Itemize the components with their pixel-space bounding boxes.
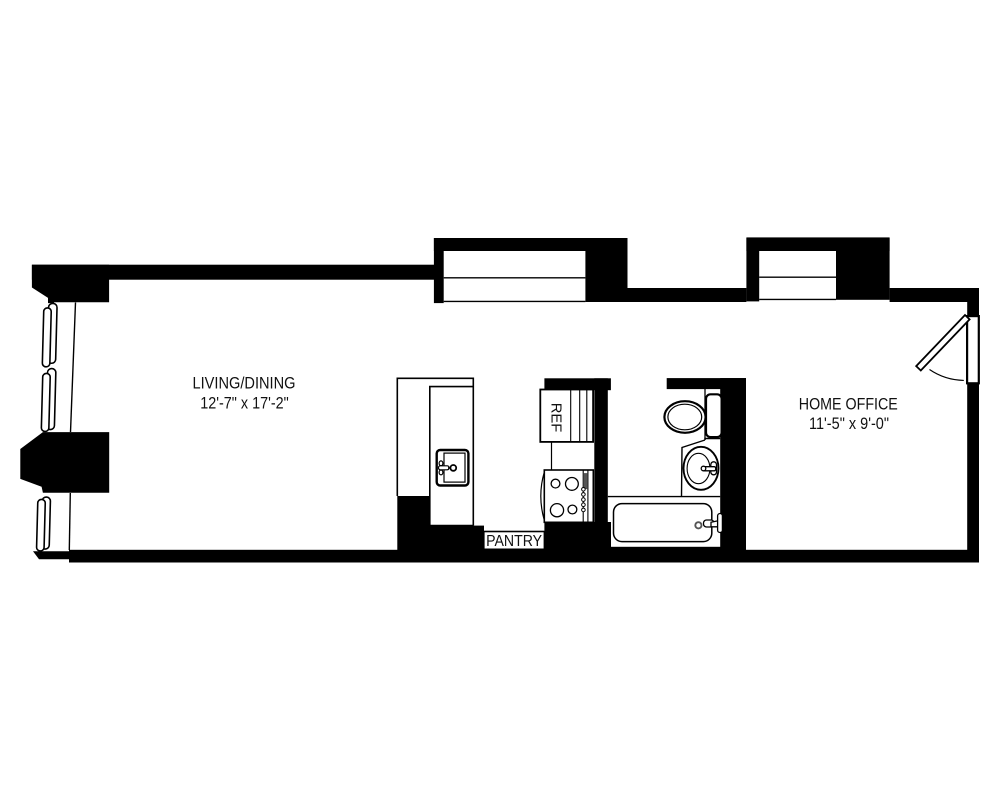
svg-text:HOME OFFICE: HOME OFFICE [799, 395, 898, 414]
svg-text:PANTRY: PANTRY [486, 533, 542, 550]
svg-text:REF: REF [548, 403, 565, 433]
svg-text:LIVING/DINING: LIVING/DINING [193, 374, 296, 393]
svg-text:12'-7" x 17'-2": 12'-7" x 17'-2" [200, 394, 289, 413]
svg-text:11'-5" x 9'-0": 11'-5" x 9'-0" [809, 414, 889, 433]
